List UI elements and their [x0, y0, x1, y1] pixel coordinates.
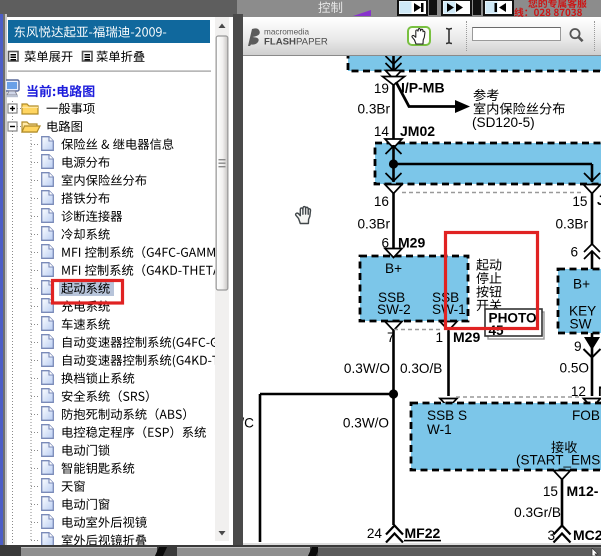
svg-text:6: 6: [570, 245, 578, 260]
svg-text:15: 15: [572, 194, 587, 209]
svg-text:0.5O: 0.5O: [560, 361, 589, 376]
svg-text:0.3O/B: 0.3O/B: [400, 361, 442, 376]
svg-text:24: 24: [367, 526, 383, 541]
svg-text:FLASHPAPER: FLASHPAPER: [264, 37, 328, 48]
svg-text:JM02: JM02: [400, 123, 435, 139]
svg-text:B+: B+: [573, 277, 590, 292]
svg-text:0.3W/O: 0.3W/O: [344, 361, 390, 376]
svg-text:MF22: MF22: [405, 525, 441, 541]
svg-text:3: 3: [547, 528, 555, 543]
svg-text:15: 15: [543, 484, 558, 499]
svg-text:0.3W/O: 0.3W/O: [343, 416, 389, 431]
svg-text:0.3Br: 0.3Br: [358, 217, 391, 232]
svg-text:MC22: MC22: [573, 527, 601, 543]
svg-text:0.3Gr/B: 0.3Gr/B: [514, 505, 561, 520]
svg-text:M29: M29: [398, 235, 425, 251]
svg-text:16: 16: [374, 194, 389, 209]
svg-text:0.3Br: 0.3Br: [358, 102, 391, 117]
svg-text:1: 1: [435, 330, 443, 345]
svg-text:FOB: FOB: [572, 408, 600, 423]
svg-text:45: 45: [489, 323, 505, 338]
svg-text:19: 19: [374, 81, 389, 96]
svg-text:macromedia: macromedia: [264, 28, 309, 37]
svg-text:14: 14: [374, 124, 390, 139]
svg-text:W-1: W-1: [427, 422, 452, 437]
svg-text:SW-2: SW-2: [377, 302, 411, 317]
svg-text:J: J: [597, 193, 601, 208]
svg-text:SW: SW: [570, 317, 592, 332]
svg-text:0.3Br: 0.3Br: [556, 217, 589, 232]
svg-text:SW-1: SW-1: [432, 302, 466, 317]
svg-text:(SD120-5): (SD120-5): [472, 115, 535, 130]
svg-text:6: 6: [381, 236, 389, 251]
svg-text:SSB S: SSB S: [427, 408, 467, 423]
svg-text:I/P-MB: I/P-MB: [401, 80, 445, 96]
svg-text:M12-: M12-: [567, 483, 599, 499]
svg-text:(START_EMS: (START_EMS: [516, 453, 600, 468]
svg-text:9: 9: [574, 339, 582, 354]
svg-text:M29: M29: [453, 329, 480, 345]
svg-text:B+: B+: [385, 261, 402, 276]
svg-text:12: 12: [571, 384, 586, 399]
svg-text:7: 7: [387, 330, 395, 345]
